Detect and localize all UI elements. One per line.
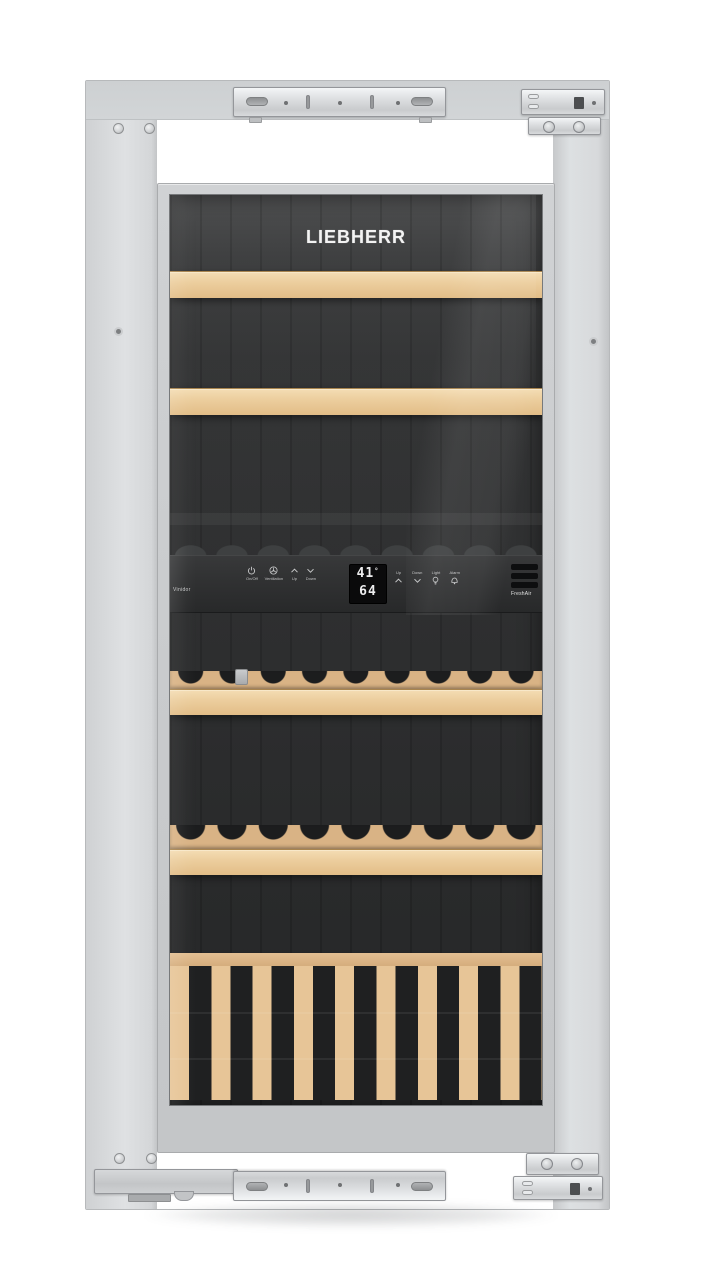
bracket-slot (411, 1182, 433, 1191)
bracket-slot (306, 95, 310, 109)
cabinet-body: LIEBHERR Vinidor On/Off (85, 80, 610, 1210)
side-screw (591, 339, 596, 344)
bracket-slot (370, 1179, 374, 1193)
button-label: On/Off (246, 576, 258, 581)
hinge-screw (543, 121, 555, 133)
bracket-hole (592, 101, 596, 105)
hinge-screw (541, 1158, 553, 1170)
up-button: Up (394, 570, 403, 585)
degree-mark: ° (374, 567, 379, 575)
hinge-latch (574, 97, 584, 109)
bottom-mounting-bracket (233, 1171, 446, 1201)
glass-reflection (170, 195, 196, 1105)
bottom-rack-rail (170, 953, 542, 966)
rack-shelf-line (170, 1058, 542, 1060)
glass-reflection (406, 195, 536, 615)
chevron-up-icon (394, 576, 403, 585)
bottom-rack-slats (170, 966, 542, 1100)
bottom-hinge-plate (526, 1153, 599, 1175)
wood-shelf-front (170, 849, 542, 875)
bracket-slot (306, 1179, 310, 1193)
side-screw (116, 329, 121, 334)
lower-zone-temperature: 64 (350, 583, 386, 601)
hinge-vent (522, 1181, 533, 1186)
button-label: Ventilation (265, 576, 283, 581)
screw-hole (114, 1153, 125, 1164)
bracket-hole (396, 101, 400, 105)
upper-zone-controls: On/Off Ventilation Up Down (246, 566, 316, 581)
glass-door: LIEBHERR Vinidor On/Off (157, 183, 555, 1153)
top-hinge-plate (528, 117, 601, 135)
bracket-hole (338, 101, 342, 105)
power-icon (247, 566, 256, 575)
bracket-foot (249, 117, 262, 123)
bracket-slot (411, 97, 433, 106)
cabinet-right-frame (553, 81, 609, 1209)
chevron-up-icon (290, 566, 299, 575)
bracket-foot (419, 117, 432, 123)
product-photo: LIEBHERR Vinidor On/Off (0, 0, 702, 1280)
hinge-vent (522, 1190, 533, 1195)
hinge-vent (528, 94, 539, 99)
bracket-slot (246, 97, 268, 106)
door-hinge-nub (235, 669, 248, 685)
cabinet-left-frame (86, 81, 157, 1209)
fan-icon (269, 566, 278, 575)
bracket-hole (338, 1183, 342, 1187)
on-off-button: On/Off (246, 566, 258, 581)
hinge-vent (528, 104, 539, 109)
button-label: Down (306, 576, 316, 581)
hinge-latch (570, 1183, 580, 1195)
button-label: Up (396, 570, 401, 575)
bottle-scallop-row (170, 671, 542, 689)
bracket-slot (370, 95, 374, 109)
bracket-hole (588, 1187, 592, 1191)
down-button: Down (306, 566, 316, 581)
bracket-hole (396, 1183, 400, 1187)
hinge-screw (571, 1158, 583, 1170)
floor-shadow (92, 1200, 610, 1236)
rack-shelf-line (170, 1012, 542, 1014)
bottle-scallop-row (170, 825, 542, 849)
ventilation-button: Ventilation (265, 566, 283, 581)
button-label: Up (292, 576, 297, 581)
bracket-slot (246, 1182, 268, 1191)
upper-zone-temperature: 41° (350, 565, 386, 583)
wood-shelf-front (170, 689, 542, 715)
top-mounting-bracket (233, 87, 446, 117)
top-hinge-rail (521, 89, 605, 115)
door-glass: LIEBHERR Vinidor On/Off (169, 194, 543, 1106)
bottom-left-bracket (94, 1169, 238, 1194)
hinge-screw (573, 121, 585, 133)
bracket-hole (284, 101, 288, 105)
bottom-hinge-rail (513, 1176, 603, 1200)
bracket-hole (284, 1183, 288, 1187)
screw-hole (146, 1153, 157, 1164)
screw-hole (113, 123, 124, 134)
temperature-display: 41° 64 (349, 564, 387, 604)
up-button: Up (290, 566, 299, 581)
screw-hole (144, 123, 155, 134)
chevron-down-icon (306, 566, 315, 575)
